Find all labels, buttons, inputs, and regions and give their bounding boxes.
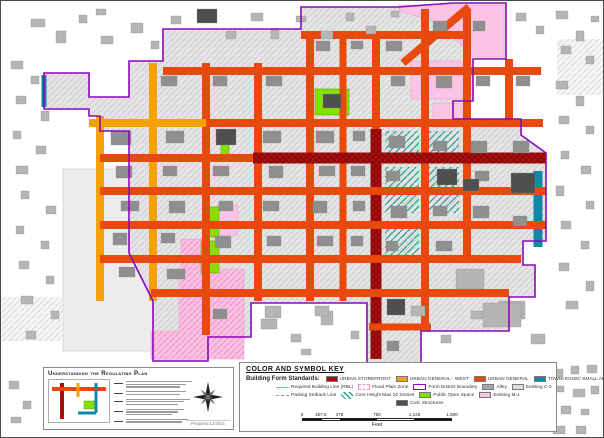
legend-item: URBAN GENERAL - WEST [396,376,469,382]
building-footprint [566,301,578,309]
building-footprint [556,386,564,392]
scale-segment [340,419,377,420]
legend-swatch [479,392,491,398]
building-footprint [23,401,31,409]
building-footprint [13,131,21,139]
building-footprint [96,9,106,15]
building-footprint [576,96,584,106]
building-footprint [41,241,49,249]
building-footprint [19,261,29,269]
building-footprint [265,306,281,318]
legend-item-label: Core Height Max 10 Stories [355,393,414,398]
annotation-group [114,419,192,423]
building-footprint [21,191,29,199]
legend-item: URBAN GENERAL [474,376,529,382]
street-general [372,33,380,133]
legend-swatch [512,384,524,390]
legend-swatch [482,384,494,390]
scale-segment [322,419,341,420]
legend-item-label: Alley [496,385,506,390]
building-footprint [119,267,135,277]
building-footprint [213,76,227,86]
building-footprint [591,16,599,22]
annotation-group [114,409,192,416]
building-footprint [561,46,571,54]
understanding-title: Understanding the Regulating Plan [48,370,229,377]
legend-swatch [474,376,486,382]
building-footprint [556,186,564,196]
building-footprint [391,76,405,86]
building-footprint [316,131,334,143]
building-footprint [56,31,66,43]
annotation-group [114,381,192,388]
building-footprint [161,76,177,86]
legend-item: Existing M-1 [479,392,519,398]
legend-swatch [396,376,408,382]
building-footprint [266,76,282,86]
scale-tick: 0 [301,412,304,417]
building-footprint [263,131,281,143]
building-footprint [456,269,484,289]
building-footprint [263,201,279,211]
building-footprint [315,306,329,316]
building-footprint [226,31,236,39]
building-footprint [576,31,584,41]
annotation-group [114,391,192,395]
building-footprint [559,263,569,271]
color-symbol-key: COLOR AND SYMBOL KEY Building Form Stand… [239,362,557,432]
building-footprint [321,31,333,39]
building-footprint [319,166,335,176]
building-footprint [571,366,579,374]
building-footprint [301,349,311,355]
legend-item-label: Existing C-2 [526,385,552,390]
scale-segment [303,419,322,420]
legend-item: Existing C-2 [512,384,552,390]
building-footprint [21,296,33,304]
building-footprint [586,126,594,134]
legend-item: TOWNHOUSE/ SMALL APT [534,376,604,382]
building-footprint [576,426,586,434]
building-footprint [16,226,24,234]
building-footprint [271,29,279,39]
legend-item: Alley [482,384,506,390]
building-footprint [261,319,277,329]
regulating-plan-sheet: Understanding the Regulating Plan [0,0,604,438]
building-footprint [131,23,143,33]
building-footprint [559,116,569,124]
building-footprint [16,96,26,104]
street-west [89,119,206,127]
credits-text: Prepared 12/2014 [186,420,230,426]
street-general [369,324,431,331]
key-row-2: Required Building Line (RBL)Flood Plain … [276,383,551,391]
legend-item: Core Height Max 10 Stories [341,392,414,399]
building-footprint [113,233,127,245]
building-footprint [433,21,447,31]
legend-item-label: URBAN GENERAL - WEST [410,377,469,382]
building-footprint [386,41,402,51]
building-footprint [516,76,530,86]
legend-item-label: Required Building Line (RBL) [291,385,353,390]
civic-structure [216,129,236,145]
street-west [149,63,157,301]
building-footprint [387,341,399,351]
mini-diagram [48,379,110,423]
building-footprint [26,331,36,339]
building-footprint [313,201,327,213]
building-footprint [586,281,594,291]
building-footprint [433,141,447,151]
building-footprint [586,201,594,209]
building-footprint [171,16,181,24]
building-footprint [51,311,59,319]
building-footprint [581,166,591,174]
building-footprint [151,41,159,49]
building-footprint [316,41,330,51]
building-footprint [46,276,54,284]
building-footprint [121,201,139,211]
scale-tick: 750 [373,412,381,417]
building-footprint [219,201,233,211]
building-footprint [291,334,301,342]
scale-segment [414,419,451,420]
legend-item-label: Existing M-1 [493,393,519,398]
scale-tick-labels: 0187.53757501,1251,500 [302,412,452,418]
building-footprint [471,141,487,153]
building-footprint [161,233,175,243]
building-footprint [441,335,451,343]
annotation-group [114,399,192,406]
building-form-standards-row: Building Form Standards: URBAN STOREFRON… [246,375,551,383]
building-footprint [391,206,407,218]
building-footprint [166,131,184,143]
building-footprint [391,11,399,17]
mini-open-space [84,401,94,409]
building-footprint [476,76,490,86]
building-footprint [513,141,529,153]
building-footprint [9,381,19,389]
building-footprint [473,206,489,218]
legend-item: Required Building Line (RBL) [276,385,353,390]
building-footprint [386,241,398,251]
building-footprint [31,19,45,27]
building-footprint [213,166,229,176]
legend-item: Flood Plain Zone [358,384,408,390]
building-footprint [36,146,46,154]
building-footprint [353,131,365,141]
scale-segment [377,419,414,420]
civic-structure [463,179,479,191]
scale-tick: 375 [336,412,344,417]
building-footprint [31,76,39,84]
scale-bar-segments [302,418,452,421]
street-storefront [253,153,546,164]
legend-item: Civic Structures [396,400,444,406]
building-footprint [573,389,585,397]
building-footprint [101,36,113,44]
civic-structure [511,173,535,193]
building-footprint [433,206,447,216]
legend-item-label: URBAN STOREFRONT [340,377,391,382]
legend-item: URBAN STOREFRONT [326,376,391,382]
building-footprint [473,21,485,31]
legend-item-label: URBAN GENERAL [488,377,529,382]
building-footprint [353,201,365,211]
street-general [100,154,255,162]
key-row-4: Civic Structures [396,399,551,407]
building-footprint [169,201,185,213]
building-footprint [163,166,177,176]
building-footprint [351,41,363,49]
key-title: COLOR AND SYMBOL KEY [246,366,551,373]
building-footprint [389,136,405,148]
building-footprint [556,11,568,19]
building-footprint [561,406,571,414]
legend-swatch [326,376,338,382]
legend-swatch [358,384,370,390]
building-footprint [556,81,568,89]
legend-item-label: Public Open Space [433,393,474,398]
building-footprint [591,386,599,394]
civic-structure [323,94,341,108]
standards-label: Building Form Standards: [246,376,320,382]
building-footprint [561,221,571,229]
legend-swatch [413,384,426,390]
building-footprint [213,309,227,319]
civic-structure [387,299,405,315]
building-footprint [317,236,333,246]
building-footprint [561,151,569,159]
street-general [206,119,543,127]
compass-rose-icon [191,380,225,414]
building-footprint [531,334,545,344]
legend-item-label: Civic Structures [410,401,444,406]
legend-item-label: Form District Boundary [428,385,477,390]
compass-area: Prepared 12/2014 [186,380,230,426]
legend-item-label: Flood Plain Zone [372,385,408,390]
building-footprint [513,216,527,226]
legend-item: Public Open Space [419,392,474,398]
building-footprint [351,236,363,246]
building-footprint [351,166,365,176]
building-footprint [111,131,131,145]
legend-swatch [396,400,408,406]
street-general [254,63,262,301]
building-footprint [587,365,597,373]
building-footprint [581,409,589,415]
building-footprint [267,236,281,246]
building-footprint [436,76,452,88]
building-footprint [346,13,354,21]
building-footprint [79,15,87,23]
building-footprint [41,111,49,121]
key-row-3: Parking Setback LineCore Height Max 10 S… [276,391,551,399]
legend-swatch [276,395,289,396]
legend-swatch [341,392,353,399]
scale-tick: 1,500 [446,412,458,417]
building-footprint [471,311,483,319]
building-footprint [251,13,263,21]
building-footprint [215,236,231,248]
legend-item-label: Parking Setback Line [291,393,336,398]
building-footprint [16,166,28,174]
street-general [163,67,541,75]
building-footprint [411,306,425,316]
street-general [151,289,509,297]
scale-unit-label: Feet [302,422,452,428]
legend-swatch [276,387,289,388]
street-general [100,255,521,263]
building-footprint [351,331,359,339]
legend-swatch [419,392,431,398]
scale-tick: 1,125 [409,412,421,417]
building-footprint [586,56,594,64]
building-footprint [436,241,452,251]
street-general [100,221,546,229]
street-west [96,116,104,301]
legend-item: Form District Boundary [413,384,477,390]
building-footprint [11,61,23,69]
building-footprint [366,26,376,34]
understanding-plan-box: Understanding the Regulating Plan [43,367,234,430]
building-footprint [516,13,526,21]
building-footprint [269,166,283,178]
building-footprint [483,303,521,327]
civic-structure [437,169,457,185]
building-footprint [167,269,185,279]
street-general [421,9,429,329]
scale-tick: 187.5 [315,412,327,417]
legend-item-label: TOWNHOUSE/ SMALL APT [548,377,604,382]
scale-bar: 0187.53757501,1251,500 Feet [302,412,452,428]
building-footprint [581,241,589,249]
legend-item: Parking Setback Line [276,393,336,398]
building-footprint [11,417,21,423]
building-footprint [46,206,56,214]
legend-swatch [534,376,546,382]
diagram-annotations [114,379,192,423]
building-footprint [386,171,400,181]
civic-structure [197,9,217,23]
building-footprint [536,26,544,34]
